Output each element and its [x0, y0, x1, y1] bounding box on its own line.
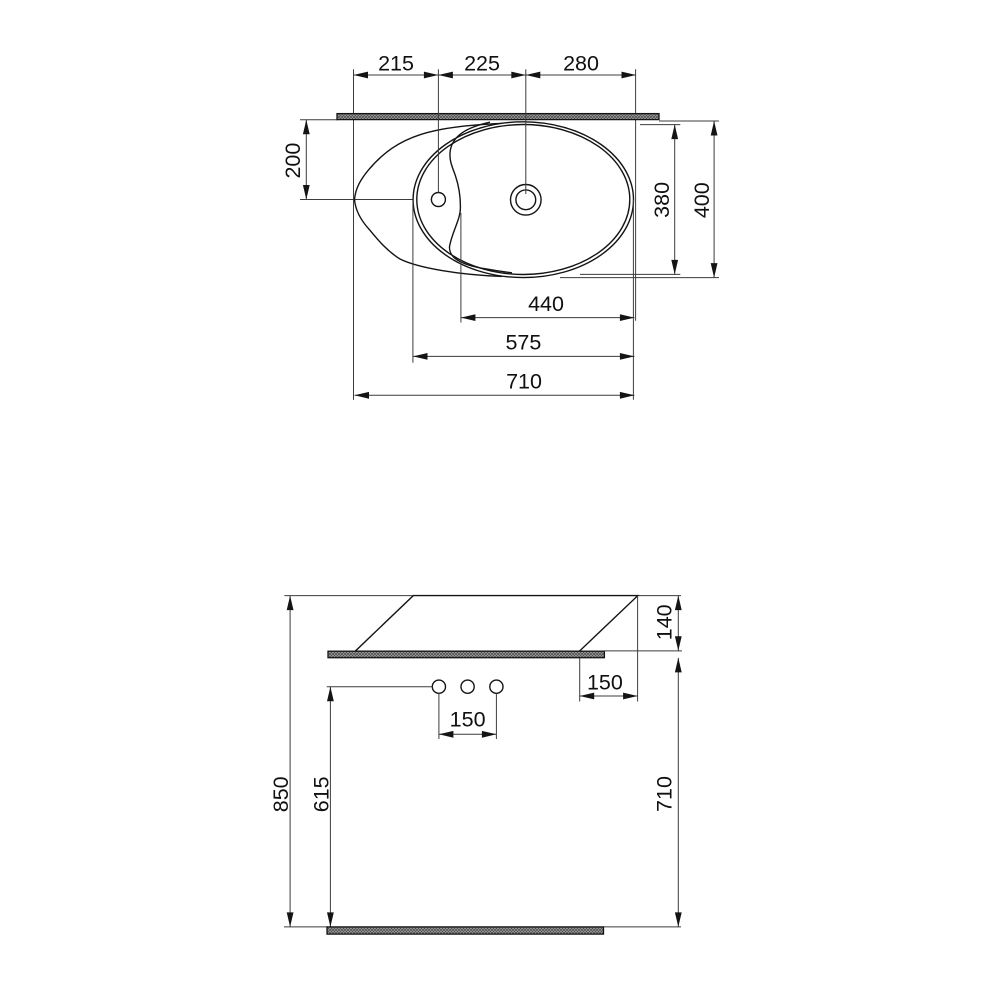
svg-text:710: 710 — [506, 370, 542, 394]
svg-text:850: 850 — [269, 776, 293, 812]
svg-text:140: 140 — [653, 604, 677, 640]
svg-text:150: 150 — [587, 671, 623, 695]
svg-text:380: 380 — [650, 182, 674, 218]
svg-text:615: 615 — [309, 776, 333, 812]
svg-text:440: 440 — [528, 292, 564, 316]
svg-text:200: 200 — [281, 143, 305, 179]
svg-text:215: 215 — [378, 52, 414, 76]
svg-text:280: 280 — [563, 52, 599, 76]
svg-text:710: 710 — [653, 776, 677, 812]
svg-text:400: 400 — [690, 182, 714, 218]
svg-text:225: 225 — [464, 52, 500, 76]
svg-text:150: 150 — [450, 708, 486, 732]
svg-text:575: 575 — [505, 331, 541, 355]
